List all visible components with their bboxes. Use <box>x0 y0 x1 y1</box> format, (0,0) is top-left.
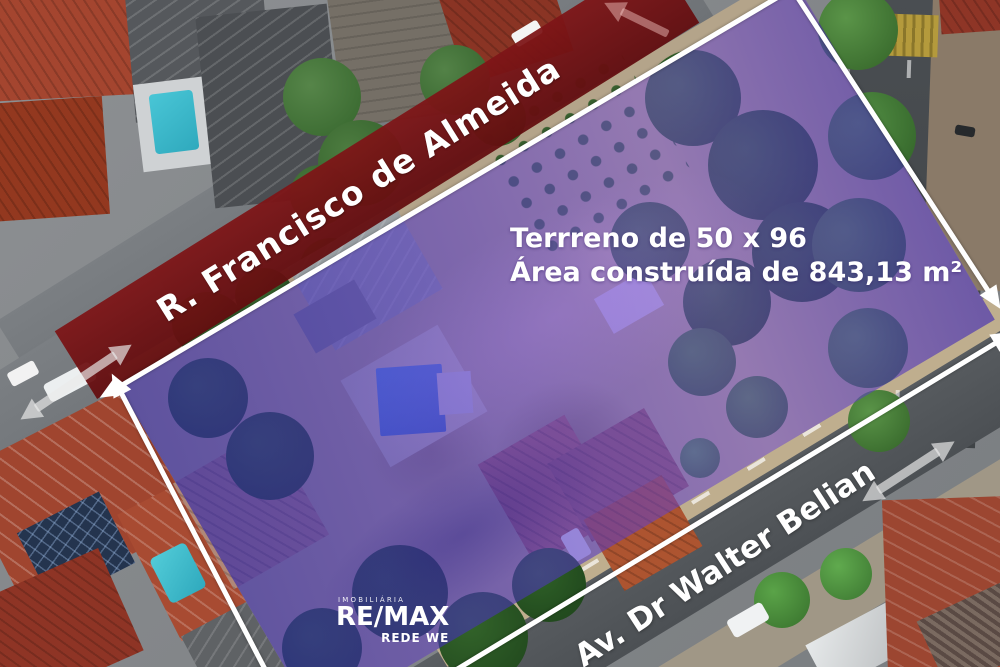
terrain-built-area-line: Área construída de 843,13 m² <box>510 256 962 290</box>
terrain-size-line: Terrreno de 50 x 96 <box>510 222 962 256</box>
rooftop-red <box>0 0 138 102</box>
terrain-info-text: Terrreno de 50 x 96 Área construída de 8… <box>510 222 962 290</box>
bush <box>820 548 872 600</box>
logo-brand-text: RE/MAX <box>336 604 449 631</box>
swimming-pool <box>149 90 200 155</box>
rooftop-red <box>0 96 110 222</box>
aerial-photo-stage: R. Francisco de Almeida Terrreno de 50 x… <box>0 0 1000 667</box>
logo-network-text: REDE WE <box>336 631 449 645</box>
rooftop-red-topright <box>939 0 1000 34</box>
remax-logo: IMOBILIÁRIA RE/MAX REDE WE <box>336 596 449 645</box>
logo-sector-text: IMOBILIÁRIA <box>338 596 449 604</box>
